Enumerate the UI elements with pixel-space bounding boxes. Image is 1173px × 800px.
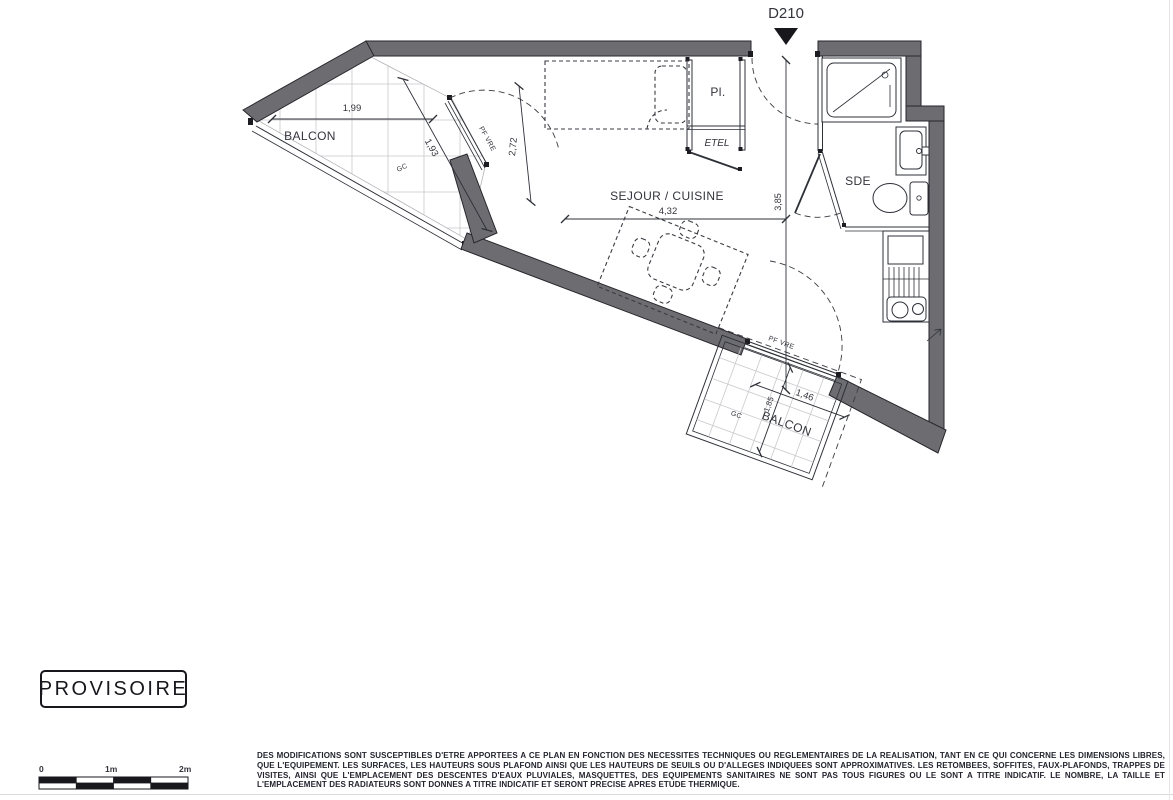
- dim-line-balcony-top-depth: [403, 79, 487, 230]
- floorplan-page: D210 BALCON GC: [0, 0, 1173, 800]
- disclaimer-text: DES MODIFICATIONS SONT SUSCEPTIBLES D'ET…: [257, 751, 1165, 790]
- unit-label: D210: [768, 5, 804, 22]
- shower-room-label: SDE: [845, 174, 871, 188]
- dim-line-window-span: [519, 86, 531, 202]
- entrance-door-swing-arc: [752, 58, 818, 124]
- balcony-top-railing: [248, 118, 467, 250]
- etel-label: ETEL: [704, 138, 729, 149]
- washbasin: [896, 127, 929, 175]
- railing-top-tag: GC: [396, 163, 409, 174]
- closet-label: Pl.: [710, 85, 725, 99]
- railing-bottom-tag: GC: [730, 410, 743, 420]
- wall-right-main: [929, 121, 944, 434]
- wall-bottom-right-diagonal: [829, 376, 946, 453]
- chair: [652, 284, 675, 306]
- balcony-top-label: BALCON: [284, 129, 336, 143]
- table: [645, 231, 707, 293]
- wall-right-step: [906, 106, 944, 121]
- scale-bar: 0 1m 2m: [39, 764, 192, 789]
- window-top-tag: PF VRE: [477, 126, 496, 153]
- kitchen-hob: [887, 297, 926, 321]
- balcony-bottom-label: BALCON: [760, 408, 813, 439]
- furniture-bed: [545, 61, 689, 129]
- scale-tick-2m: 2m: [179, 764, 192, 774]
- dim-balcony-bottom-width: 1,46: [794, 387, 815, 404]
- dim-balcony-top-depth: 1,93: [422, 137, 441, 159]
- kitchen-sink: [888, 236, 923, 264]
- entrance-door: [748, 51, 820, 124]
- dim-balcony-top-width: 1,99: [343, 103, 362, 114]
- scale-bar-segments: [39, 777, 188, 789]
- scale-tick-1m: 1m: [105, 764, 118, 774]
- provisional-stamp: PROVISOIRE: [40, 670, 187, 708]
- wall-right-upper: [906, 56, 921, 106]
- shower-tray: [822, 58, 901, 122]
- wall-above-shower: [818, 41, 921, 56]
- bed-sheet-fold: [647, 110, 667, 129]
- chair: [700, 265, 722, 288]
- etel-door-leaf: [689, 152, 740, 170]
- bed-pillow: [655, 66, 687, 123]
- dim-living-width: 4,32: [659, 206, 678, 217]
- living-room-label: SEJOUR / CUISINE: [610, 189, 724, 203]
- chair: [630, 236, 652, 259]
- window-bottom-swing-arc: [770, 261, 842, 372]
- closet-pl: Pl. ETEL: [686, 57, 746, 171]
- dim-living-depth: 3,85: [773, 193, 783, 211]
- provisional-stamp-label: PROVISOIRE: [39, 678, 188, 701]
- wall-below-window: [450, 154, 497, 243]
- toilet: [873, 182, 928, 215]
- wall-top: [366, 41, 751, 56]
- sde-door-leaf: [795, 154, 820, 213]
- window-bottom-tag: PF VRE: [767, 335, 795, 351]
- unit-marker: D210: [768, 5, 804, 45]
- dim-window-span: 2,72: [507, 137, 520, 157]
- entrance-triangle-icon: [774, 28, 798, 45]
- balcony-top: BALCON GC: [248, 50, 490, 250]
- scale-tick-0: 0: [39, 764, 44, 774]
- chair: [678, 219, 701, 241]
- balcony-bottom: 1,46 1,85 BALCON GC: [679, 328, 862, 489]
- kitchenette: [883, 231, 929, 322]
- faucet-icon: [917, 149, 922, 154]
